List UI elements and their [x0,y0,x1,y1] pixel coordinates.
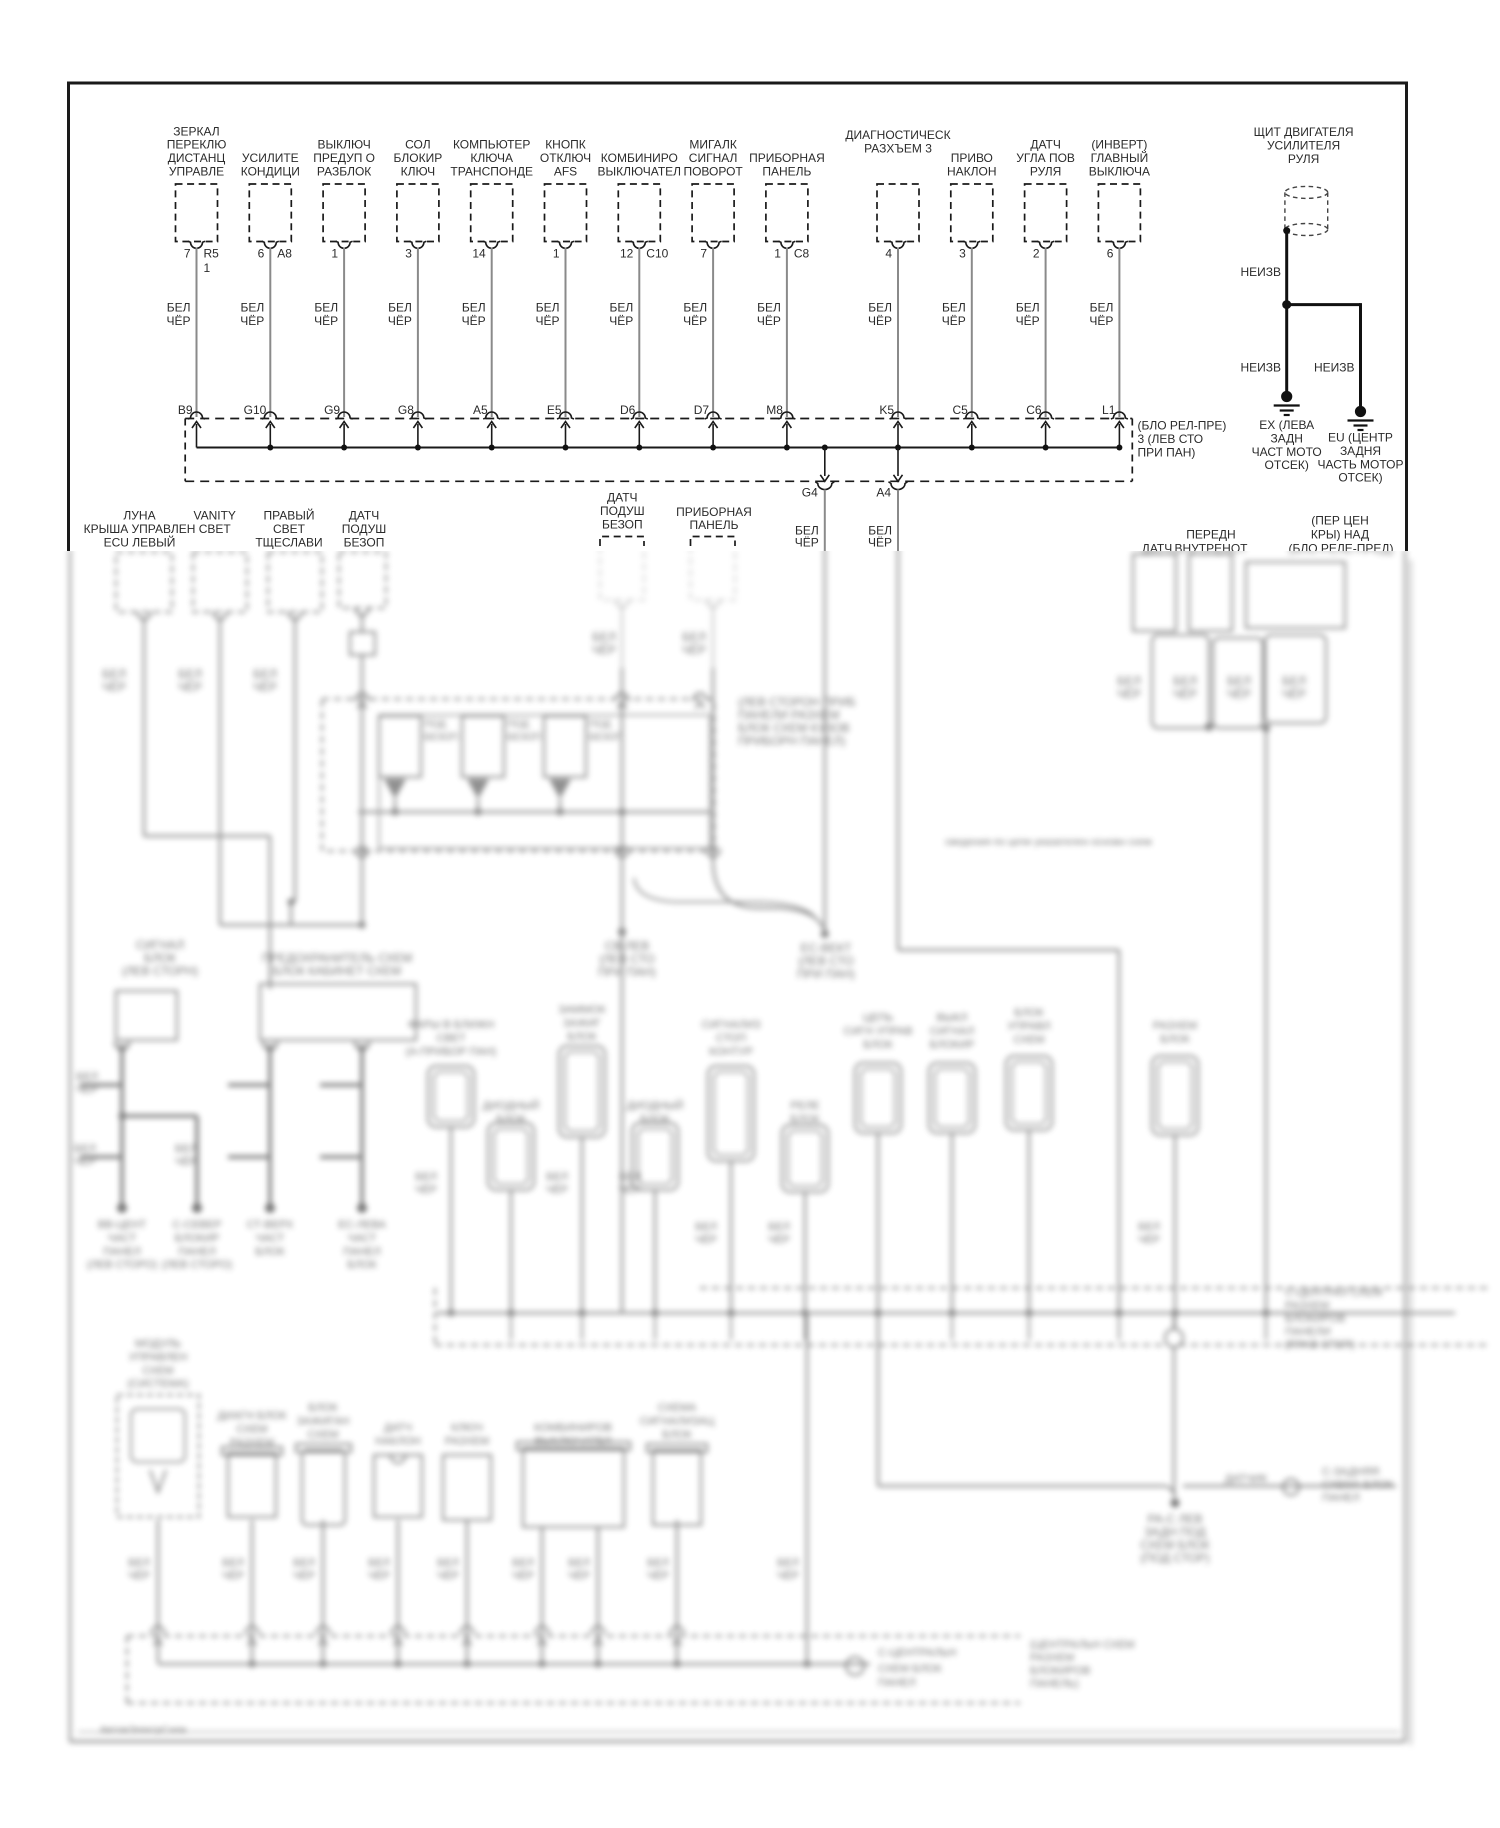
svg-text:БЕЛ: БЕЛ [388,301,412,315]
svg-text:(А-ПРИБОР ПАН): (А-ПРИБОР ПАН) [406,1046,497,1058]
svg-text:(ПОД СТОР): (ПОД СТОР) [1140,1551,1210,1565]
svg-text:БЕЛ: БЕЛ [768,1221,790,1233]
svg-text:БЛОК: БЛОК [662,1429,692,1441]
svg-text:РАЗБЛОК: РАЗБЛОК [317,165,371,179]
svg-text:НАКЛОН: НАКЛОН [947,165,997,179]
svg-text:ПАНЕЛЬ: ПАНЕЛЬ [689,518,738,532]
svg-text:УГЛА ПОВ: УГЛА ПОВ [1016,151,1075,165]
svg-text:БЕЛ: БЕЛ [868,301,892,315]
svg-text:(ЛЕВ СТО: (ЛЕВ СТО [798,954,854,968]
svg-text:БЕЛ: БЕЛ [1227,674,1251,688]
svg-text:ПАНЕЛИ: ПАНЕЛИ [1285,1326,1331,1338]
svg-text:БЕЛ: БЕЛ [241,301,265,315]
svg-text:EX (ЛЕВА: EX (ЛЕВА [1259,418,1314,432]
svg-text:ЧЁР: ЧЁР [388,314,412,328]
svg-text:РАЗХЪЕМ 3: РАЗХЪЕМ 3 [864,141,932,155]
svg-text:ЧЁР: ЧЁР [415,1184,437,1196]
svg-text:ЧЁР: ЧЁР [1117,687,1141,701]
svg-text:БЕЛ: БЕЛ [178,667,202,681]
svg-text:СОЛ: СОЛ [405,138,430,152]
svg-text:(ПЕР ЦЕН: (ПЕР ЦЕН [1311,514,1369,528]
svg-text:(ЛЕВ СТОРО): (ЛЕВ СТОРО) [162,1259,232,1271]
svg-text:БЛОК: БЛОК [567,1031,597,1043]
svg-text:КОМПЬЮТЕР: КОМПЬЮТЕР [453,138,530,152]
svg-text:СВЕТ: СВЕТ [273,522,306,536]
svg-text:ЧАСТ: ЧАСТ [348,1232,377,1244]
svg-text:ЧЁР: ЧЁР [1227,687,1251,701]
svg-text:КОНДИЦИ: КОНДИЦИ [241,165,300,179]
svg-text:БЕЛ: БЕЛ [222,1557,244,1569]
svg-text:СХЕМ БЛОК: СХЕМ БЛОК [1140,1538,1209,1552]
svg-text:ПАНЕЛИ РАЗХЕМ: ПАНЕЛИ РАЗХЕМ [738,708,839,722]
svg-text:(ЛЕВ СТОРО): (ЛЕВ СТОРО) [87,1259,157,1271]
svg-text:12: 12 [620,247,634,261]
svg-text:ЧЁР: ЧЁР [1089,314,1113,328]
svg-text:ЧЁР: ЧЁР [757,314,781,328]
svg-text:СИГНАЛ: СИГНАЛ [930,1025,975,1037]
svg-text:БЕЛ: БЕЛ [592,630,616,644]
svg-text:УСИЛИТЕ: УСИЛИТЕ [242,151,299,165]
svg-text:С-ЦЕНТРАЛ СХЕМ: С-ЦЕНТРАЛ СХЕМ [1285,1287,1382,1299]
svg-text:ПАНЕЛЬ): ПАНЕЛЬ) [1030,1678,1079,1690]
svg-text:БЕЛ: БЕЛ [253,667,277,681]
svg-text:ЗАЖИГАН: ЗАЖИГАН [297,1415,350,1427]
svg-text:ДАТЧ: ДАТЧ [1142,542,1173,552]
svg-text:ЗАДНЯ: ЗАДНЯ [1340,444,1381,458]
svg-text:ЧЁР: ЧЁР [683,314,707,328]
svg-text:ОТСЕК): ОТСЕК) [1338,471,1382,485]
svg-text:ЧЁР: ЧЁР [240,314,264,328]
svg-text:БЕЛ: БЕЛ [293,1557,315,1569]
svg-text:ЧАСТЬ МОТОР: ЧАСТЬ МОТОР [1317,457,1403,471]
svg-text:БЕЛ: БЕЛ [314,301,338,315]
svg-text:1: 1 [774,247,781,261]
svg-text:ЧЁР: ЧЁР [868,536,892,550]
svg-text:ПАНЕЛ: ПАНЕЛ [878,1677,916,1689]
svg-text:ЧЁР: ЧЁР [1282,687,1306,701]
svg-text:ПОВОРОТ: ПОВОРОТ [683,165,743,179]
svg-text:НЕИЗВ: НЕИЗВ [1240,265,1281,279]
svg-text:МОДУЛЬ: МОДУЛЬ [135,1338,181,1350]
svg-text:РУЛЯ: РУЛЯ [1030,165,1062,179]
svg-text:СХЕМ: СХЕМ [1013,1034,1044,1046]
svg-text:БЕЛ: БЕЛ [1138,1221,1160,1233]
svg-text:ЦЕПЬ: ЦЕПЬ [863,1012,894,1024]
svg-text:M8: M8 [766,403,783,417]
svg-text:6: 6 [258,247,265,261]
svg-text:ЧЁР: ЧЁР [76,1084,98,1096]
svg-text:МИГАЛК: МИГАЛК [689,138,736,152]
svg-text:БЛОКИРОВ: БЛОКИРОВ [1285,1313,1345,1325]
svg-text:СВ-ЛЕВ: СВ-ЛЕВ [605,939,650,953]
svg-text:БЕЛ: БЕЛ [415,1171,437,1183]
svg-text:СВЕТ: СВЕТ [199,522,232,536]
svg-text:ЧЁР: ЧЁР [546,1184,568,1196]
svg-text:ПОД: ПОД [507,719,529,730]
svg-text:БЕЛ: БЕЛ [1090,301,1114,315]
svg-text:ПАНЕЛ: ПАНЕЛ [1322,1492,1360,1504]
svg-text:ПАНЕЛЬ: ПАНЕЛЬ [762,165,811,179]
svg-text:ПЕРЕКЛЮ: ПЕРЕКЛЮ [167,138,227,152]
svg-text:ЧЁР: ЧЁР [437,1570,459,1582]
svg-text:ЧЁР: ЧЁР [293,1570,315,1582]
svg-text:БЕЛ: БЕЛ [568,1557,590,1569]
svg-text:БЕЛ: БЕЛ [619,1171,641,1183]
svg-text:ОТСЕК): ОТСЕК) [1265,458,1309,472]
svg-text:БЕЛ: БЕЛ [683,301,707,315]
svg-text:ВЫКЛЮЧ: ВЫКЛЮЧ [317,138,370,152]
svg-text:1: 1 [331,247,338,261]
svg-text:AFS: AFS [554,165,577,179]
svg-text:ЧЁР: ЧЁР [695,1234,717,1246]
svg-text:ЗЕРКАЛ: ЗЕРКАЛ [173,124,219,138]
svg-text:7: 7 [700,247,707,261]
svg-text:ЗАММОК: ЗАММОК [558,1004,606,1016]
svg-text:СТОП: СТОП [716,1032,746,1044]
svg-text:РУЛЯ: РУЛЯ [1288,152,1320,166]
svg-text:БЕЛ: БЕЛ [437,1557,459,1569]
svg-text:БЕЛ: БЕЛ [682,630,706,644]
svg-text:ПОДУШ: ПОДУШ [342,522,387,536]
svg-text:С-ЦЕНТРАЛЬН: С-ЦЕНТРАЛЬН [878,1647,956,1659]
svg-text:ЧЁР: ЧЁР [1173,687,1197,701]
svg-text:НЕИЗВ: НЕИЗВ [1240,361,1281,375]
svg-text:ФАРЫ В БЛИЖН: ФАРЫ В БЛИЖН [408,1019,494,1031]
svg-text:(ЦЕНТРАЛЬН СХЕМ: (ЦЕНТРАЛЬН СХЕМ [1030,1639,1135,1651]
svg-text:БЛОК: БЛОК [255,1246,285,1258]
svg-text:1: 1 [204,261,211,275]
svg-text:КЛЮЧ: КЛЮЧ [401,165,436,179]
svg-text:ПРИБОРНАЯ: ПРИБОРНАЯ [749,151,825,165]
svg-text:БЕЛ: БЕЛ [777,1557,799,1569]
svg-text:СХЕМА: СХЕМА [658,1402,697,1414]
svg-text:7: 7 [184,247,191,261]
svg-text:ЧЁР: ЧЁР [1016,314,1040,328]
svg-text:ЩИТ ДВИГАТЕЛЯ: ЩИТ ДВИГАТЕЛЯ [1254,125,1354,139]
svg-text:ЧЁР: ЧЁР [609,314,633,328]
svg-text:БЕЛ: БЕЛ [942,301,966,315]
svg-text:6: 6 [1107,247,1114,261]
svg-text:ЧЁР: ЧЁР [102,680,126,694]
svg-text:ЧЁР: ЧЁР [74,1156,96,1168]
svg-text:ЧАСТ: ЧАСТ [256,1232,285,1244]
svg-text:БЛОК: БЛОК [1160,1033,1190,1045]
svg-text:БЛОКИРОВ: БЛОКИРОВ [1030,1665,1090,1677]
svg-text:ЕС-ВЕКТ: ЕС-ВЕКТ [801,941,853,955]
svg-text:БЛОК: БЛОК [308,1402,338,1414]
svg-text:БЛОКИР: БЛОКИР [175,1232,220,1244]
svg-text:ЧЁР: ЧЁР [512,1570,534,1582]
svg-text:(СИСТЕМА): (СИСТЕМА) [127,1378,188,1390]
svg-text:ДАТЧ: ДАТЧ [384,1422,412,1434]
svg-text:ЧЁР: ЧЁР [592,643,616,657]
svg-text:БЕЛ: БЕЛ [512,1557,534,1569]
svg-text:БЕЛ: БЕЛ [76,1071,98,1083]
svg-text:БЕЛ: БЕЛ [647,1557,669,1569]
svg-text:БЛОК СХЕМ КУЗОВ: БЛОК СХЕМ КУЗОВ [738,721,850,735]
svg-text:R5: R5 [204,247,220,261]
svg-text:ЧЁР: ЧЁР [868,314,892,328]
svg-text:ПРИ ПАН): ПРИ ПАН) [598,965,656,979]
svg-text:УПРАВЛЕ: УПРАВЛЕ [169,165,224,179]
svg-text:НЕИЗВ: НЕИЗВ [1314,361,1355,375]
svg-text:СХЕМ: СХЕМ [236,1423,267,1435]
svg-text:БЕЛ: БЕЛ [757,301,781,315]
svg-text:БЕЗОП: БЕЗОП [344,536,385,550]
svg-text:С-ЗАДНЯЯ: С-ЗАДНЯЯ [1322,1466,1379,1478]
svg-text:ТЩЕСЛАВИ: ТЩЕСЛАВИ [255,536,322,550]
svg-text:ВЫКЛЮЧА: ВЫКЛЮЧА [1089,165,1150,179]
svg-text:(БЛО РЕЛ-ПРЕ): (БЛО РЕЛ-ПРЕ) [1138,419,1227,433]
svg-text:БЕЗОП: БЕЗОП [507,732,541,743]
svg-text:ПАНЕЛ: ПАНЕЛ [103,1246,141,1258]
svg-text:РА-С ЛЕВ: РА-С ЛЕВ [1147,1512,1202,1526]
svg-text:БЛОКИР: БЛОКИР [394,151,443,165]
svg-text:СИГНАЛИЗАЦ: СИГНАЛИЗАЦ [640,1415,715,1427]
svg-text:БЕЛ: БЕЛ [74,1143,96,1155]
svg-text:КОМБИНИРОВ: КОМБИНИРОВ [534,1422,612,1434]
svg-text:ДИАГНОСТИЧЕСК: ДИАГНОСТИЧЕСК [845,128,950,142]
svg-text:ДАТЧ: ДАТЧ [607,491,638,505]
svg-text:VANITY: VANITY [193,509,235,523]
svg-text:G8: G8 [398,403,414,417]
svg-text:ПАНЕЛ: ПАНЕЛ [343,1246,381,1258]
svg-text:УПРАВЛЕН: УПРАВЛЕН [129,1351,188,1363]
svg-text:ПРИБОРН ПАНЕЛ): ПРИБОРН ПАНЕЛ) [738,734,846,748]
svg-text:ДИСТАНЦ: ДИСТАНЦ [168,151,226,165]
svg-text:ПОД: ПОД [424,719,446,730]
svg-text:РЕЛЕ: РЕЛЕ [790,1100,819,1112]
svg-text:БЕЛ: БЕЛ [546,1171,568,1183]
svg-text:3 (ЛЕВ СТО: 3 (ЛЕВ СТО [1138,432,1204,446]
svg-text:ЧЁР: ЧЁР [942,314,966,328]
svg-text:БЛОК: БЛОК [144,951,176,965]
svg-text:4: 4 [885,247,892,261]
svg-text:КРЫ) НАД: КРЫ) НАД [1311,528,1369,542]
svg-text:ПРАВЫЙ: ПРАВЫЙ [263,508,314,523]
svg-text:БЕЛ: БЕЛ [536,301,560,315]
svg-text:ПРИВО: ПРИВО [951,151,993,165]
svg-text:ЧЁР: ЧЁР [682,643,706,657]
svg-text:БЕЛ: БЕЛ [1282,674,1306,688]
svg-text:14: 14 [472,247,486,261]
svg-text:(ИНВЕРТ): (ИНВЕРТ) [1091,138,1147,152]
svg-text:СИГНАЛ: СИГНАЛ [136,938,185,952]
svg-text:ЗАДН: ЗАДН [1270,431,1302,445]
svg-text:БЛОК КАБИНЕТ СХЕМ: БЛОК КАБИНЕТ СХЕМ [273,964,401,978]
svg-text:ЗАДН ПОД: ЗАДН ПОД [1144,1525,1206,1539]
svg-text:ПРИБОРНАЯ: ПРИБОРНАЯ [676,505,752,519]
svg-text:ПРЕДОХРАНИТЕЛЬ СХЕМ: ПРЕДОХРАНИТЕЛЬ СХЕМ [262,951,412,965]
svg-text:ГЛАВНЫЙ: ГЛАВНЫЙ [1091,150,1149,165]
svg-text:ЧЁР: ЧЁР [462,314,486,328]
svg-text:БЕЛ: БЕЛ [167,301,191,315]
svg-text:ДАТЧИК: ДАТЧИК [1225,1473,1268,1485]
svg-text:G10: G10 [244,403,267,417]
svg-text:ЧЁР: ЧЁР [253,680,277,694]
svg-text:БЕЗОП: БЕЗОП [602,518,643,532]
svg-text:ПАНЕЛ: ПАНЕЛ [178,1246,216,1258]
svg-text:РАЗХЕМ: РАЗХЕМ [1285,1300,1329,1312]
svg-text:A8: A8 [277,247,292,261]
svg-text:ВВ-ЦЕНТ: ВВ-ЦЕНТ [98,1219,147,1231]
svg-text:EU (ЦЕНТР: EU (ЦЕНТР [1328,431,1393,445]
svg-text:ВЫКЛ: ВЫКЛ [937,1012,968,1024]
svg-text:БЛОКИР: БЛОКИР [930,1039,975,1051]
svg-text:БЕЛ: БЕЛ [695,1221,717,1233]
svg-text:ДИАГН БЛОК: ДИАГН БЛОК [217,1410,287,1422]
svg-text:БЕЛ: БЕЛ [368,1557,390,1569]
svg-text:G4: G4 [802,486,818,500]
svg-text:ЧЁР: ЧЁР [1138,1234,1160,1246]
svg-text:ЧЁР: ЧЁР [647,1570,669,1582]
svg-text:сведения по цепи указателен ос: сведения по цепи указателен основн схем [945,836,1152,848]
svg-text:СХЕМ: СХЕМ [142,1365,173,1377]
svg-text:БЛОК: БЛОК [347,1259,377,1271]
svg-text:БЕЗОП: БЕЗОП [424,732,458,743]
svg-text:ЧЁР: ЧЁР [777,1570,799,1582]
svg-text:ПОД: ПОД [589,719,611,730]
svg-text:1: 1 [553,247,560,261]
svg-text:ПРИ ПАН): ПРИ ПАН) [1138,445,1196,459]
svg-text:СХЕМА БЛОК: СХЕМА БЛОК [1322,1479,1394,1491]
svg-text:БЛОК: БЛОК [1014,1007,1044,1019]
svg-text:ЧЁР: ЧЁР [535,314,559,328]
svg-text:СИГНАЛ: СИГНАЛ [689,151,738,165]
svg-text:ЧЁР: ЧЁР [222,1570,244,1582]
svg-text:БЕЛ: БЕЛ [462,301,486,315]
svg-text:КОНТУР: КОНТУР [709,1046,753,1058]
svg-text:АвтомЭлектрСхем: АвтомЭлектрСхем [100,1725,186,1736]
svg-text:ПЕРЕДН: ПЕРЕДН [1186,528,1235,542]
svg-text:(ПРАВ СТОР): (ПРАВ СТОР) [1285,1339,1354,1351]
svg-text:НАКЛОН: НАКЛОН [375,1435,420,1447]
svg-text:ЧЁР: ЧЁР [619,1184,641,1196]
svg-text:ДАТЧ: ДАТЧ [1030,138,1061,152]
svg-text:ДАТЧ: ДАТЧ [349,509,380,523]
svg-text:УПРАВЛ: УПРАВЛ [1007,1020,1050,1032]
svg-text:КЛЮЧ: КЛЮЧ [451,1422,483,1434]
svg-text:ЧЁР: ЧЁР [368,1570,390,1582]
svg-text:УСИЛИТЕЛЯ: УСИЛИТЕЛЯ [1267,138,1340,152]
svg-text:БЛОК: БЛОК [790,1113,820,1125]
svg-text:(ЛЕВ СТО: (ЛЕВ СТО [599,952,655,966]
svg-text:БЕЛ: БЕЛ [610,301,634,315]
svg-text:ВЫКЛЮЧАТЕЛ: ВЫКЛЮЧАТЕЛ [598,165,682,179]
svg-text:ДИОДНЫЙ: ДИОДНЫЙ [627,1099,684,1112]
svg-text:C8: C8 [794,247,810,261]
svg-text:ЧЁР: ЧЁР [175,1156,197,1168]
svg-text:КНОПК: КНОПК [545,138,586,152]
svg-text:РАЗХЕМ: РАЗХЕМ [1030,1652,1074,1664]
svg-text:ТРАНСПОНДЕ: ТРАНСПОНДЕ [450,165,533,179]
svg-text:G9: G9 [324,403,340,417]
svg-text:A4: A4 [876,486,891,500]
svg-text:ЛУНА: ЛУНА [123,509,155,523]
svg-text:БЕЗОП: БЕЗОП [589,732,623,743]
svg-text:РАЗХЕМ: РАЗХЕМ [1153,1020,1197,1032]
svg-text:ОТКЛЮЧ: ОТКЛЮЧ [540,151,591,165]
svg-text:БЕЛ: БЕЛ [1117,674,1141,688]
svg-text:ВНУТРЕНОТ: ВНУТРЕНОТ [1175,542,1249,552]
svg-text:БЕЛ: БЕЛ [128,1557,150,1569]
svg-text:C10: C10 [646,247,668,261]
svg-text:СИГН УПРАВ: СИГН УПРАВ [844,1025,913,1037]
svg-text:(ЛЕВ СТОРОН ПРИБ: (ЛЕВ СТОРОН ПРИБ [738,695,856,709]
svg-text:ЗАЖИГ: ЗАЖИГ [563,1017,601,1029]
svg-text:(ЛЕВ СТОРН): (ЛЕВ СТОРН) [122,964,198,978]
svg-text:БЕЛ: БЕЛ [1016,301,1040,315]
svg-text:С-СЕВЕР: С-СЕВЕР [173,1219,222,1231]
svg-text:3: 3 [959,247,966,261]
svg-text:ЧЁР: ЧЁР [568,1570,590,1582]
svg-text:ECU ЛЕВЫЙ: ECU ЛЕВЫЙ [104,535,176,550]
svg-text:ЧЁР: ЧЁР [166,314,190,328]
svg-text:ЧЁР: ЧЁР [178,680,202,694]
svg-text:СВЕТ: СВЕТ [436,1032,466,1044]
svg-text:ДИОДНЫЙ: ДИОДНЫЙ [483,1099,540,1112]
svg-text:ЧАСТ: ЧАСТ [108,1232,137,1244]
svg-text:ЧЁР: ЧЁР [768,1234,790,1246]
svg-text:СХЕМ: СХЕМ [307,1429,338,1441]
svg-text:(БЛО РЕЛЕ-ПРЕД): (БЛО РЕЛЕ-ПРЕД) [1288,542,1393,552]
svg-text:ПОДУШ: ПОДУШ [600,504,645,518]
svg-text:СИГНАЛИЗ: СИГНАЛИЗ [701,1019,760,1031]
svg-text:ПРЕДУП О: ПРЕДУП О [313,151,375,165]
svg-text:БЕЛ: БЕЛ [175,1143,197,1155]
svg-text:СТ-ВЕРХ: СТ-ВЕРХ [247,1219,294,1231]
svg-text:БЕЛ: БЕЛ [102,667,126,681]
svg-text:КЛЮЧА: КЛЮЧА [470,151,513,165]
svg-text:КРЫША УПРАВЛЕН: КРЫША УПРАВЛЕН [84,522,196,536]
svg-text:РАЗХЕМ: РАЗХЕМ [445,1435,489,1447]
svg-text:ЧАСТ МОТО: ЧАСТ МОТО [1252,445,1322,459]
svg-text:3: 3 [405,247,412,261]
svg-text:БЕЛ: БЕЛ [1173,674,1197,688]
svg-text:ЧЁР: ЧЁР [314,314,338,328]
svg-text:ЧЁР: ЧЁР [128,1570,150,1582]
svg-text:ПРИ ПАН): ПРИ ПАН) [797,967,855,981]
svg-text:2: 2 [1033,247,1040,261]
svg-text:СХЕМ БЛОК: СХЕМ БЛОК [878,1663,942,1675]
svg-text:КОМБИНИРО: КОМБИНИРО [601,151,678,165]
svg-text:ЧЁР: ЧЁР [795,536,819,550]
svg-text:БЛОК: БЛОК [863,1039,893,1051]
svg-text:ЕС-ЛЕВА: ЕС-ЛЕВА [338,1219,386,1231]
